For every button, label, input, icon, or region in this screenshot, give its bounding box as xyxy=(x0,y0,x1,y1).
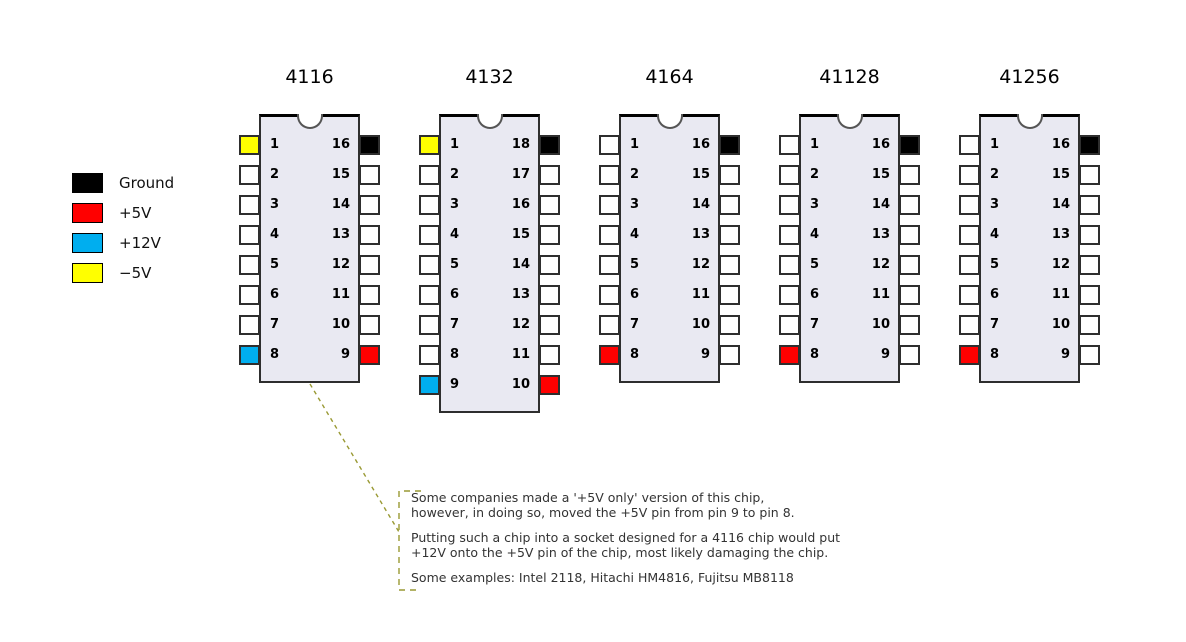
pin-number: 11 xyxy=(494,345,530,365)
pin-number: 5 xyxy=(270,255,300,275)
pin-number: 14 xyxy=(674,195,710,215)
pin-5 xyxy=(599,255,620,275)
pin-number: 4 xyxy=(810,225,840,245)
pin-1-minus5v xyxy=(239,135,260,155)
pin-number: 1 xyxy=(270,135,300,155)
pin-12 xyxy=(539,315,560,335)
pin-number: 10 xyxy=(314,315,350,335)
annotation-paragraph: Some companies made a '+5V only' version… xyxy=(411,490,840,520)
pin-10-plus5v xyxy=(539,375,560,395)
pin-number: 7 xyxy=(450,315,480,335)
pin-5 xyxy=(959,255,980,275)
pin-10 xyxy=(719,315,740,335)
pin-number: 4 xyxy=(630,225,660,245)
pin-number: 13 xyxy=(854,225,890,245)
pin-number: 15 xyxy=(674,165,710,185)
pin-number: 16 xyxy=(314,135,350,155)
pin-9 xyxy=(1079,345,1100,365)
pin-11 xyxy=(1079,285,1100,305)
pin-14 xyxy=(1079,195,1100,215)
pin-number: 9 xyxy=(674,345,710,365)
pin-16-ground xyxy=(1079,135,1100,155)
leader-line xyxy=(310,384,399,532)
pin-number: 1 xyxy=(990,135,1020,155)
annotation-line: Some companies made a '+5V only' version… xyxy=(411,490,840,505)
pin-number: 14 xyxy=(494,255,530,275)
annotation-paragraph: Some examples: Intel 2118, Hitachi HM481… xyxy=(411,570,840,585)
annotation-line: +12V onto the +5V pin of the chip, most … xyxy=(411,545,840,560)
chip-title: 4164 xyxy=(599,66,740,88)
pin-4 xyxy=(599,225,620,245)
pin-number: 9 xyxy=(314,345,350,365)
pin-number: 16 xyxy=(494,195,530,215)
pin-number: 15 xyxy=(314,165,350,185)
pin-13 xyxy=(719,225,740,245)
pin-12 xyxy=(899,255,920,275)
legend-item-plus5v: +5V xyxy=(72,203,174,223)
pin-number: 16 xyxy=(854,135,890,155)
pin-8-plus5v xyxy=(779,345,800,365)
pin-number: 9 xyxy=(1034,345,1070,365)
chip-title: 41256 xyxy=(959,66,1100,88)
legend-item-ground: Ground xyxy=(72,173,174,193)
pin-8-plus5v xyxy=(959,345,980,365)
pin-number: 6 xyxy=(810,285,840,305)
pin-14 xyxy=(899,195,920,215)
chip-title: 41128 xyxy=(779,66,920,88)
pin-number: 6 xyxy=(270,285,300,305)
pin-12 xyxy=(359,255,380,275)
pin-5 xyxy=(779,255,800,275)
pin-11 xyxy=(899,285,920,305)
pin-number: 12 xyxy=(1034,255,1070,275)
chip-title: 4116 xyxy=(239,66,380,88)
pin-number: 16 xyxy=(674,135,710,155)
pin-number: 8 xyxy=(810,345,840,365)
ground-swatch xyxy=(72,173,103,193)
pin-number: 2 xyxy=(630,165,660,185)
pin-5 xyxy=(419,255,440,275)
pin-11 xyxy=(359,285,380,305)
pin-number: 1 xyxy=(810,135,840,155)
pin-9 xyxy=(899,345,920,365)
pin-number: 14 xyxy=(1034,195,1070,215)
pin-number: 2 xyxy=(810,165,840,185)
pin-number: 10 xyxy=(674,315,710,335)
pin-number: 8 xyxy=(270,345,300,365)
pin-14 xyxy=(359,195,380,215)
pin-number: 8 xyxy=(450,345,480,365)
pin-number: 10 xyxy=(1034,315,1070,335)
pin-4 xyxy=(419,225,440,245)
pin-10 xyxy=(359,315,380,335)
pin-9-plus5v xyxy=(359,345,380,365)
pin-number: 12 xyxy=(674,255,710,275)
annotation-line: however, in doing so, moved the +5V pin … xyxy=(411,505,840,520)
annotation-line: Some examples: Intel 2118, Hitachi HM481… xyxy=(411,570,840,585)
pin-number: 12 xyxy=(494,315,530,335)
pin-15 xyxy=(1079,165,1100,185)
pin-7 xyxy=(599,315,620,335)
pin-3 xyxy=(599,195,620,215)
pin-number: 5 xyxy=(630,255,660,275)
pin-number: 6 xyxy=(990,285,1020,305)
legend-label: −5V xyxy=(119,264,151,282)
pin-7 xyxy=(239,315,260,335)
pin-13 xyxy=(899,225,920,245)
pin-number: 10 xyxy=(854,315,890,335)
pin-1 xyxy=(599,135,620,155)
pin-4 xyxy=(779,225,800,245)
pin-number: 9 xyxy=(854,345,890,365)
pin-number: 5 xyxy=(450,255,480,275)
pin-number: 17 xyxy=(494,165,530,185)
pin-2 xyxy=(599,165,620,185)
legend-label: Ground xyxy=(119,174,174,192)
pin-12 xyxy=(719,255,740,275)
pin-14 xyxy=(719,195,740,215)
pin-8-plus12v xyxy=(239,345,260,365)
pin-13 xyxy=(359,225,380,245)
pin-number: 11 xyxy=(674,285,710,305)
pin-12 xyxy=(1079,255,1100,275)
pin-7 xyxy=(419,315,440,335)
pin-8 xyxy=(419,345,440,365)
pin-number: 3 xyxy=(810,195,840,215)
legend-item-plus12v: +12V xyxy=(72,233,174,253)
pin-number: 13 xyxy=(674,225,710,245)
annotation-text: Some companies made a '+5V only' version… xyxy=(411,490,840,595)
pin-7 xyxy=(779,315,800,335)
pin-10 xyxy=(1079,315,1100,335)
pin-2 xyxy=(959,165,980,185)
pin-3 xyxy=(959,195,980,215)
pin-number: 14 xyxy=(314,195,350,215)
pin-5 xyxy=(239,255,260,275)
pin-3 xyxy=(419,195,440,215)
pin-number: 3 xyxy=(450,195,480,215)
pin-number: 15 xyxy=(854,165,890,185)
plus5v-swatch xyxy=(72,203,103,223)
legend-item-minus5v: −5V xyxy=(72,263,174,283)
pin-11 xyxy=(539,345,560,365)
pin-1 xyxy=(779,135,800,155)
pin-number: 3 xyxy=(630,195,660,215)
pin-9 xyxy=(719,345,740,365)
pin-number: 11 xyxy=(854,285,890,305)
pin-number: 15 xyxy=(494,225,530,245)
pin-15 xyxy=(539,225,560,245)
pin-number: 13 xyxy=(1034,225,1070,245)
pin-4 xyxy=(959,225,980,245)
legend: Ground+5V+12V−5V xyxy=(72,173,174,293)
pin-15 xyxy=(899,165,920,185)
pin-number: 3 xyxy=(270,195,300,215)
pin-2 xyxy=(419,165,440,185)
pin-number: 16 xyxy=(1034,135,1070,155)
pin-16 xyxy=(539,195,560,215)
pin-number: 1 xyxy=(630,135,660,155)
plus12v-swatch xyxy=(72,233,103,253)
pin-number: 7 xyxy=(990,315,1020,335)
pin-3 xyxy=(239,195,260,215)
pin-number: 11 xyxy=(314,285,350,305)
pin-number: 10 xyxy=(494,375,530,395)
pin-number: 4 xyxy=(270,225,300,245)
pin-number: 4 xyxy=(450,225,480,245)
pin-10 xyxy=(899,315,920,335)
pin-number: 2 xyxy=(990,165,1020,185)
pin-13 xyxy=(1079,225,1100,245)
annotation-line: Putting such a chip into a socket design… xyxy=(411,530,840,545)
legend-label: +5V xyxy=(119,204,151,222)
pin-number: 11 xyxy=(1034,285,1070,305)
pin-number: 8 xyxy=(630,345,660,365)
pin-14 xyxy=(539,255,560,275)
pin-17 xyxy=(539,165,560,185)
pin-number: 15 xyxy=(1034,165,1070,185)
pin-number: 7 xyxy=(270,315,300,335)
pin-6 xyxy=(239,285,260,305)
pin-15 xyxy=(359,165,380,185)
pin-number: 18 xyxy=(494,135,530,155)
pin-16-ground xyxy=(719,135,740,155)
pin-number: 13 xyxy=(314,225,350,245)
pin-6 xyxy=(419,285,440,305)
pin-1-minus5v xyxy=(419,135,440,155)
pin-number: 1 xyxy=(450,135,480,155)
pin-6 xyxy=(959,285,980,305)
pin-number: 2 xyxy=(270,165,300,185)
pin-15 xyxy=(719,165,740,185)
pin-3 xyxy=(779,195,800,215)
pin-2 xyxy=(239,165,260,185)
pin-13 xyxy=(539,285,560,305)
chip-title: 4132 xyxy=(419,66,560,88)
dram-pinout-diagram: Ground+5V+12V−5V 41161234567816151413121… xyxy=(0,0,1186,642)
pin-number: 9 xyxy=(450,375,480,395)
pin-number: 7 xyxy=(630,315,660,335)
pin-4 xyxy=(239,225,260,245)
pin-18-ground xyxy=(539,135,560,155)
pin-number: 3 xyxy=(990,195,1020,215)
pin-6 xyxy=(779,285,800,305)
pin-11 xyxy=(719,285,740,305)
pin-number: 6 xyxy=(630,285,660,305)
pin-1 xyxy=(959,135,980,155)
pin-number: 8 xyxy=(990,345,1020,365)
pin-number: 13 xyxy=(494,285,530,305)
pin-number: 6 xyxy=(450,285,480,305)
pin-number: 2 xyxy=(450,165,480,185)
pin-6 xyxy=(599,285,620,305)
pin-number: 12 xyxy=(314,255,350,275)
pin-number: 4 xyxy=(990,225,1020,245)
pin-number: 12 xyxy=(854,255,890,275)
legend-label: +12V xyxy=(119,234,161,252)
pin-9-plus12v xyxy=(419,375,440,395)
pin-number: 5 xyxy=(810,255,840,275)
pin-number: 14 xyxy=(854,195,890,215)
pin-7 xyxy=(959,315,980,335)
pin-16-ground xyxy=(359,135,380,155)
pin-8-plus5v xyxy=(599,345,620,365)
pin-2 xyxy=(779,165,800,185)
annotation-paragraph: Putting such a chip into a socket design… xyxy=(411,530,840,560)
minus5v-swatch xyxy=(72,263,103,283)
pin-number: 5 xyxy=(990,255,1020,275)
pin-16-ground xyxy=(899,135,920,155)
pin-number: 7 xyxy=(810,315,840,335)
